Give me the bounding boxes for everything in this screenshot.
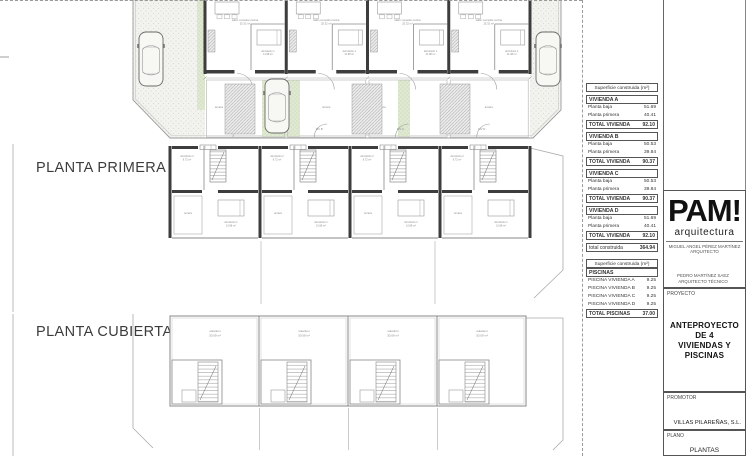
- table-row: Planta primera39.84: [586, 186, 658, 194]
- room-area: 9.72 m²: [183, 158, 192, 161]
- plano-label: PLANO: [664, 431, 745, 439]
- promoter-value: VILLAS PILAREÑAS, S.L.: [674, 420, 741, 426]
- window: [200, 145, 216, 150]
- row-value: 9.25: [647, 301, 656, 309]
- architect-name: MIGUEL ANGEL PÉREZ MARTÍNEZ ARQUITECTO: [664, 244, 745, 255]
- roof-plan: solarium 30.09 m² solarium 30.09 m² sola…: [0, 314, 582, 456]
- row-value: 37.00: [642, 310, 655, 317]
- terrace-label: terraza: [485, 105, 494, 109]
- room-area: 9.72 m²: [273, 158, 282, 161]
- car: [137, 32, 165, 86]
- roof-unit-a: solarium 30.09 m²: [170, 316, 259, 406]
- project-label: PROYECTO: [664, 289, 745, 297]
- closet: [452, 30, 459, 52]
- terrace-label: terraza: [184, 212, 192, 215]
- room-area: 10.88 m²: [406, 224, 416, 227]
- vivienda-a-block: VIVIENDA A Planta baja51.69 Planta prime…: [586, 95, 658, 129]
- table-header: Superficie construida (m²): [586, 259, 658, 268]
- table-row: VIVIENDA C: [586, 169, 658, 178]
- row-label: PISCINA VIVIENDA D: [588, 301, 635, 309]
- gate-label: MV B: [316, 127, 323, 131]
- bed: [501, 30, 525, 45]
- title-block-spacer: [663, 0, 746, 190]
- row-value: 92.10: [642, 121, 655, 128]
- row-value: 50.53: [644, 178, 656, 186]
- row-label: Planta baja: [588, 178, 612, 186]
- room-area: 25.32 m²: [483, 22, 494, 26]
- table-row: Planta baja51.69: [586, 104, 658, 112]
- terrace-label: terraza: [322, 105, 331, 109]
- row-value: 51.69: [644, 104, 656, 112]
- project-title-line2: VIVIENDAS Y PISCINAS: [664, 341, 745, 361]
- table-row: Planta primera40.41: [586, 112, 658, 120]
- pools-title: PISCINAS: [586, 268, 658, 277]
- studio-logo: PAM!: [664, 194, 745, 227]
- window: [380, 145, 396, 150]
- room-area: 10.88 m²: [226, 224, 236, 227]
- room-area: 11.98 m²: [507, 53, 517, 56]
- table-total-row: TOTAL VIVIENDA90.37: [586, 157, 658, 166]
- table-row: Planta baja51.69: [586, 215, 658, 223]
- table-row: PISCINA VIVIENDA C9.25: [586, 293, 658, 301]
- table-row: Planta baja50.53: [586, 141, 658, 149]
- table-row: PISCINA VIVIENDA A9.25: [586, 277, 658, 285]
- closet: [289, 30, 296, 52]
- row-label: PISCINA VIVIENDA B: [588, 285, 635, 293]
- row-label: Planta primera: [588, 112, 619, 120]
- parking-pad: [352, 84, 382, 134]
- row-value: 364.94: [640, 244, 655, 251]
- window: [470, 145, 486, 150]
- row-value: 40.41: [644, 223, 656, 231]
- row-label: TOTAL VIVIENDA: [589, 195, 630, 202]
- row-value: 50.53: [644, 141, 656, 149]
- room-area: 9.72 m²: [363, 158, 372, 161]
- terrace-label: terraza: [454, 212, 462, 215]
- room-area: 10.88 m²: [316, 224, 326, 227]
- table-total-row: TOTAL VIVIENDA90.37: [586, 194, 658, 203]
- solarium-area: 30.09 m²: [387, 333, 399, 337]
- technical-architect: PEDRO MARTÍNEZ SAEZ ARQUITECTO TÉCNICO: [664, 273, 742, 284]
- plot-boundary: [133, 314, 153, 448]
- area-tables: Superficie construida (m²) VIVIENDA A Pl…: [586, 83, 658, 318]
- row-label: Planta primera: [588, 223, 619, 231]
- gate-label: MV C: [397, 127, 404, 131]
- room-area: 11.98 m²: [263, 53, 273, 56]
- first-floor-plan: dormitorio 2 9.72 m² dormitorio 1 10.88 …: [0, 144, 582, 312]
- solarium-label: solarium: [209, 329, 221, 333]
- unit-c-first: dormitorio 2 9.72 m² dormitorio 1 10.88 …: [349, 145, 439, 238]
- room-label: salón comedor-cocina: [394, 18, 421, 22]
- row-value: 9.25: [647, 277, 656, 285]
- studio-logo-sub: arquitectura: [664, 227, 745, 238]
- table-row: VIVIENDA B: [586, 132, 658, 141]
- row-label: Planta baja: [588, 141, 612, 149]
- table-total-row: TOTAL VIVIENDA92.10: [586, 120, 658, 129]
- door-arc: [318, 74, 334, 90]
- row-label: Planta baja: [588, 215, 612, 223]
- row-label: total construida: [589, 244, 623, 251]
- pools-total-row: TOTAL PISCINAS 37.00: [586, 309, 658, 318]
- closet: [208, 30, 215, 52]
- closet: [371, 30, 378, 52]
- table-row: Planta primera40.41: [586, 223, 658, 231]
- room-area: 25.32 m²: [240, 22, 251, 26]
- unit-b-first: dormitorio 2 9.72 m² dormitorio 1 10.88 …: [259, 145, 349, 238]
- gate-label: MV D: [478, 127, 485, 131]
- project-title-line1: ANTEPROYECTO DE 4: [664, 321, 745, 341]
- row-label: TOTAL VIVIENDA: [589, 158, 630, 165]
- terrace: [264, 196, 292, 234]
- room-label: salón comedor-cocina: [476, 18, 503, 22]
- row-value: 51.69: [644, 215, 656, 223]
- bed: [420, 30, 444, 45]
- room-label: salón comedor-cocina: [313, 18, 340, 22]
- tech-role-line: ARQUITECTO TÉCNICO: [664, 279, 742, 284]
- row-label: Planta baja: [588, 104, 612, 112]
- row-label: Planta primera: [588, 186, 619, 194]
- solarium-area: 30.09 m²: [298, 333, 310, 337]
- table-row: Planta baja50.53: [586, 178, 658, 186]
- car: [534, 32, 562, 86]
- unit-a-first: dormitorio 2 9.72 m² dormitorio 1 10.88 …: [169, 145, 259, 238]
- plot-boundary: [530, 148, 563, 298]
- parking-pad: [225, 84, 255, 134]
- room-area: 11.98 m²: [426, 53, 436, 56]
- dining-table: [459, 2, 483, 14]
- row-value: 9.25: [647, 293, 656, 301]
- table-row: VIVIENDA A: [586, 95, 658, 104]
- grand-total-row: total construida 364.94: [586, 243, 658, 252]
- terrace-label: terraza: [215, 105, 224, 109]
- project-title: ANTEPROYECTO DE 4 VIVIENDAS Y PISCINAS: [664, 321, 745, 361]
- terrace: [444, 196, 472, 234]
- vivienda-b-block: VIVIENDA B Planta baja50.53 Planta prime…: [586, 132, 658, 166]
- title-block: PAM! arquitectura MIGUEL ANGEL PÉREZ MAR…: [663, 0, 746, 456]
- architect-logo-box: PAM! arquitectura MIGUEL ANGEL PÉREZ MAR…: [663, 190, 746, 288]
- dining-table: [296, 2, 320, 14]
- row-label: TOTAL PISCINAS: [589, 310, 630, 317]
- promoter-box: PROMOTOR VILLAS PILAREÑAS, S.L.: [663, 392, 746, 430]
- bed: [257, 30, 281, 45]
- section-separator: [0, 0, 582, 1]
- row-value: 39.84: [644, 149, 656, 157]
- row-value: 90.37: [642, 158, 655, 165]
- row-value: 90.37: [642, 195, 655, 202]
- table-row: Planta primera39.84: [586, 149, 658, 157]
- architect-role-line: ARQUITECTO: [664, 249, 745, 254]
- table-header: Superficie construida (m²): [586, 83, 658, 92]
- vivienda-c-block: VIVIENDA C Planta baja50.53 Planta prime…: [586, 169, 658, 203]
- row-value: 40.41: [644, 112, 656, 120]
- vivienda-d-block: VIVIENDA D Planta baja51.69 Planta prime…: [586, 206, 658, 240]
- plano-box: PLANO PLANTAS: [663, 430, 746, 456]
- table-row: PISCINA VIVIENDA B9.25: [586, 285, 658, 293]
- plot-boundary: [526, 318, 563, 450]
- car: [263, 79, 291, 133]
- drawing-divider: [582, 0, 583, 456]
- terrace-label: terraza: [274, 212, 282, 215]
- row-label: TOTAL VIVIENDA: [589, 121, 630, 128]
- divider: [666, 241, 743, 242]
- roof-unit-b: solarium 30.09 m²: [259, 316, 348, 406]
- door-arc: [481, 74, 497, 90]
- room-label: salón comedor-cocina: [232, 18, 259, 22]
- room-area: 25.32 m²: [402, 22, 413, 26]
- solarium-area: 30.09 m²: [209, 333, 221, 337]
- row-label: TOTAL VIVIENDA: [589, 232, 630, 239]
- room-area: 25.32 m²: [321, 22, 332, 26]
- promoter-label: PROMOTOR: [664, 393, 745, 401]
- ground-floor-plan: salón comedor-cocina 25.32 m² dormitorio…: [0, 0, 582, 143]
- project-box: PROYECTO ANTEPROYECTO DE 4 VIVIENDAS Y P…: [663, 288, 746, 392]
- bed: [338, 30, 362, 45]
- roof-unit-c: solarium 30.09 m²: [348, 316, 437, 406]
- dining-table: [378, 2, 402, 14]
- unit-d-first: dormitorio 2 9.72 m² dormitorio 1 10.88 …: [439, 145, 529, 238]
- terrace: [354, 196, 382, 234]
- row-value: 9.25: [647, 285, 656, 293]
- row-label: Planta primera: [588, 149, 619, 157]
- solarium-area: 30.09 m²: [476, 333, 488, 337]
- roof-unit-d: solarium 30.09 m²: [437, 316, 526, 406]
- row-value: 92.10: [642, 232, 655, 239]
- terrace-label: terraza: [364, 212, 372, 215]
- plano-value: PLANTAS: [664, 447, 745, 454]
- row-label: PISCINA VIVIENDA C: [588, 293, 635, 301]
- room-area: 10.88 m²: [496, 224, 506, 227]
- room-area: 11.98 m²: [344, 53, 354, 56]
- party-wall: [529, 0, 532, 74]
- room-area: 9.72 m²: [453, 158, 462, 161]
- table-row: VIVIENDA D: [586, 206, 658, 215]
- window: [290, 145, 306, 150]
- parking-pad: [440, 84, 470, 134]
- solarium-label: solarium: [298, 329, 310, 333]
- party-wall: [529, 146, 532, 238]
- table-total-row: TOTAL VIVIENDA92.10: [586, 231, 658, 240]
- solarium-label: solarium: [387, 329, 399, 333]
- dining-table: [215, 2, 239, 14]
- terrace: [174, 196, 202, 234]
- table-row: PISCINA VIVIENDA D9.25: [586, 301, 658, 309]
- row-label: PISCINA VIVIENDA A: [588, 277, 635, 285]
- row-value: 39.84: [644, 186, 656, 194]
- drawing-sheet: salón comedor-cocina 25.32 m² dormitorio…: [0, 0, 756, 456]
- solarium-label: solarium: [476, 329, 488, 333]
